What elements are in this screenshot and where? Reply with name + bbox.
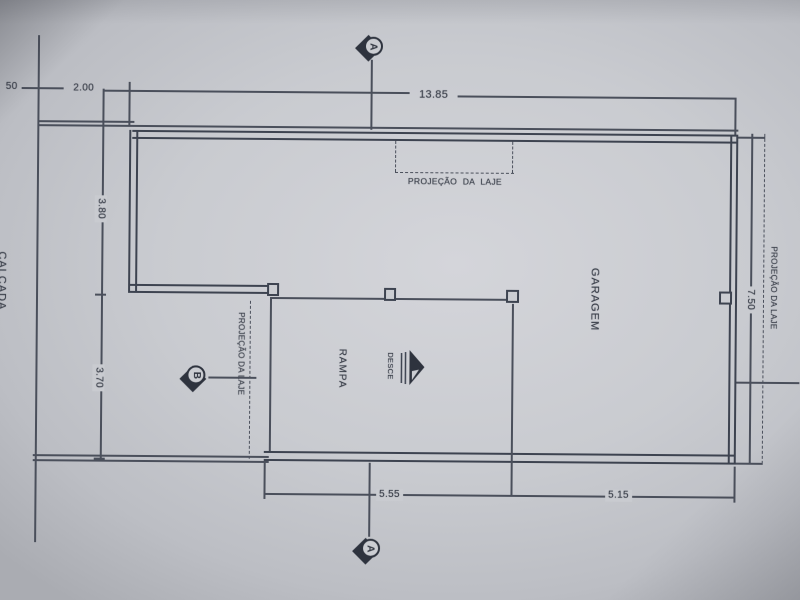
slab-projection-box-right [512,142,513,173]
slab-projection-line-left [249,301,251,459]
fence-line-bottom-b [33,459,269,462]
section-marker-circle: A [360,539,379,558]
ramp-left-line [269,297,272,451]
section-letter: A [365,545,375,552]
section-b-line-right [736,382,799,384]
dim-label-bottom-left: 5.55 [376,489,403,501]
wall-top [132,130,738,144]
dim-line-bottom [263,493,733,498]
ramp-right-line [510,304,513,496]
dim-label-bottom-right: 5.15 [605,490,632,502]
dim-tick-left-1 [96,125,107,127]
slab-projection-line-right [762,134,766,464]
dim-tick-left-2 [95,294,106,296]
dim-tick-left-3 [94,458,105,460]
dim-line-top-seg1 [22,87,64,89]
slab-projection-label-top: PROJEÇÃO DA LAJE [408,177,502,186]
dim-line-top-seg3 [458,95,735,99]
dim-label-setback: 2.00 [73,83,94,93]
floor-plan-drawing: CALÇADA 50 2.00 13.85 A [0,0,800,600]
ramp-direction-arrow-icon [397,346,427,388]
sidewalk-label: CALÇADA [0,251,7,310]
street-line [34,35,39,542]
slab-projection-label-left: PROJEÇÃO DA LAJE [236,312,245,395]
wall-bottom [264,451,736,465]
floor-plan-photo: CALÇADA 50 2.00 13.85 A [0,0,800,600]
dim-label-depth-lower: 3.70 [92,364,104,391]
section-a-bottom-stem [368,463,370,537]
section-letter: B [191,371,201,378]
wall-left-lower [128,284,272,294]
column-3 [719,292,732,305]
column-1 [384,288,396,301]
fence-line-bottom-a [33,454,269,457]
section-marker-circle: B [186,365,205,384]
dim-extension-left [128,82,130,125]
dim-ext-bottom-left [263,463,265,499]
slab-projection-label-right: PROJEÇÃO DA LAJE [769,246,778,329]
ramp-direction-label: DESCE [387,352,395,379]
wall-end-cap [267,283,279,296]
ramp-label: RAMPA [336,349,346,389]
section-b-stem [208,376,256,378]
dim-label-depth-total: 7.50 [744,286,756,313]
column-2 [506,290,519,303]
dim-line-left [100,89,104,459]
dim-ext-bottom-right [733,467,735,503]
slab-projection-box-bottom [395,172,514,174]
section-a-top-stem [370,60,372,130]
dim-label-lot-edge: 50 [6,82,18,92]
section-letter: A [368,43,378,50]
dim-line-top-seg2 [105,90,410,94]
dim-label-depth-upper: 3.80 [95,195,107,222]
garage-label: GARAGEM [588,268,599,331]
slab-projection-box-left [395,141,396,172]
section-marker-circle: A [363,37,382,56]
dim-label-total-width: 13.85 [419,90,448,101]
fence-line-upper [37,120,134,122]
wall-left [128,130,138,293]
